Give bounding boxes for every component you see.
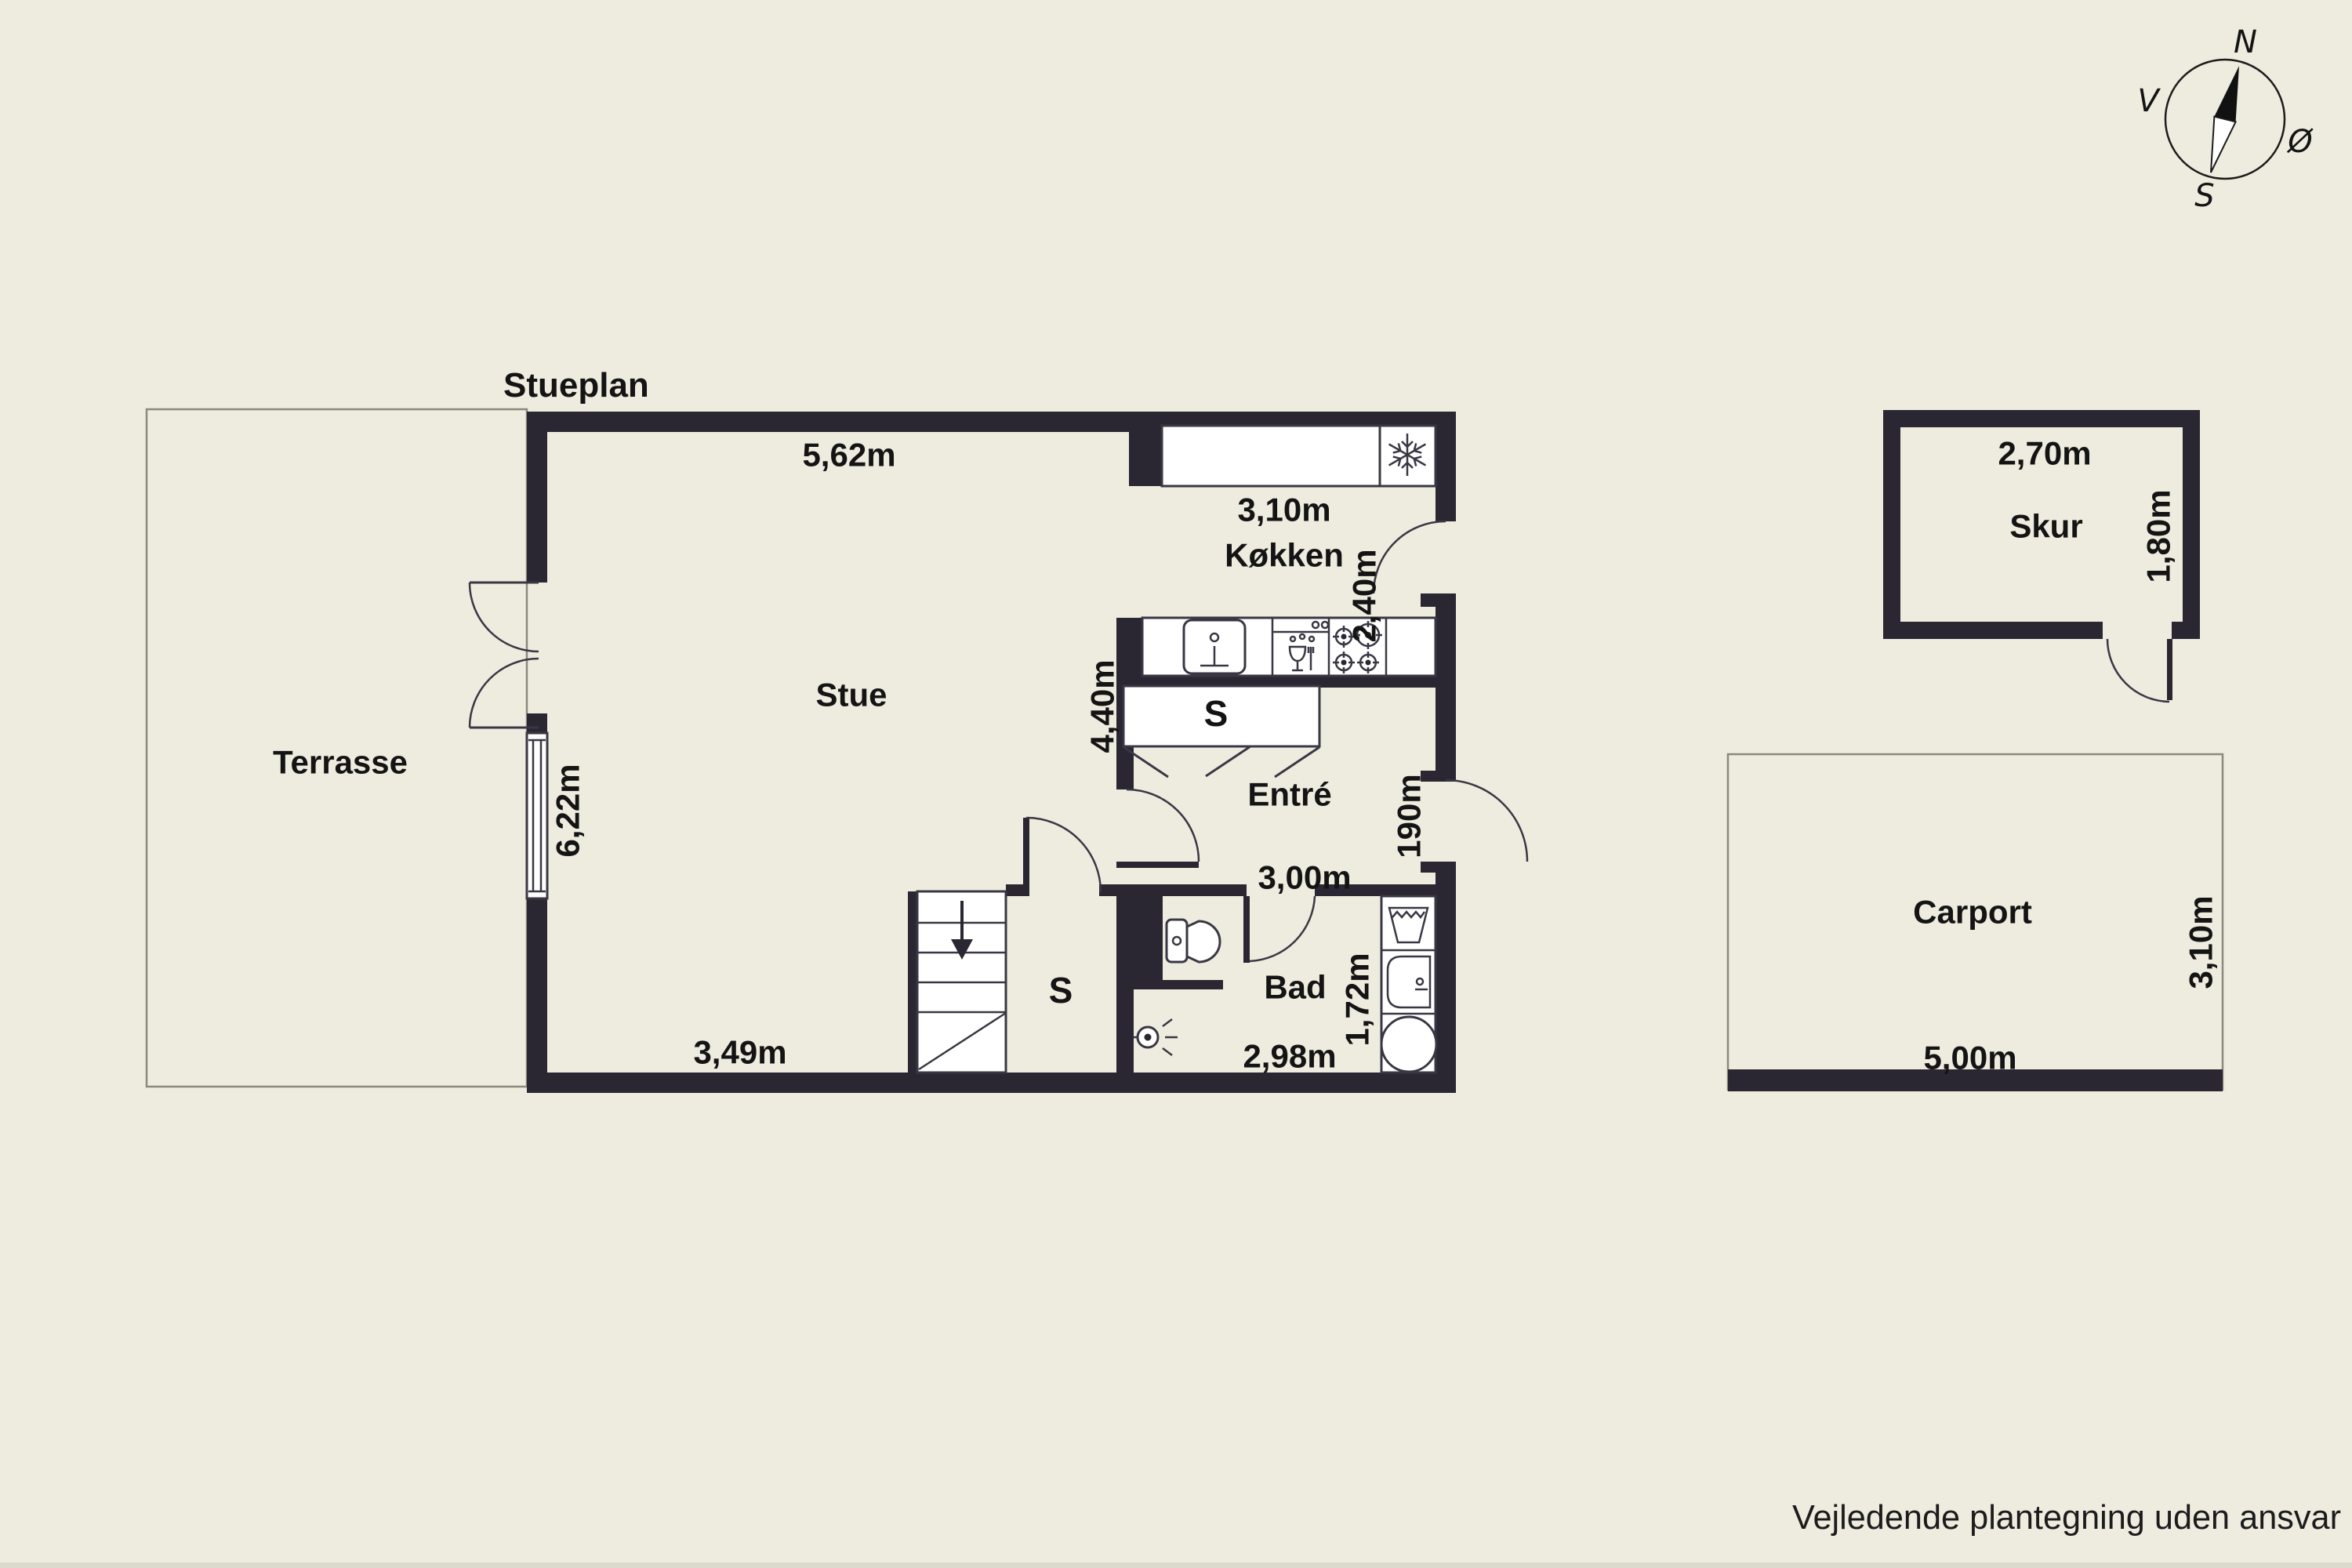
compass-label-north: N [2234, 24, 2257, 60]
compass-label-east: Ø [2286, 124, 2314, 160]
wall-bottom [527, 1073, 1456, 1093]
measure-skur-depth: 1,80m [2140, 489, 2177, 583]
label-bad: Bad [1264, 969, 1326, 1006]
measure-entre-door: 190m [1391, 774, 1428, 858]
closet-door-leaf [1023, 818, 1029, 896]
entre-door-leaf [1116, 862, 1199, 868]
label-koekken: Køkken [1225, 537, 1344, 574]
measure-bad-width: 2,98m [1243, 1038, 1336, 1075]
label-terrasse: Terrasse [273, 744, 408, 781]
measure-entre-width: 3,00m [1258, 859, 1351, 896]
label-carport: Carport [1913, 894, 2032, 931]
wall-right-middle [1436, 593, 1456, 782]
bad-door-arc [1250, 896, 1315, 961]
bad-left-wall [1116, 884, 1134, 1093]
compass-needle-north [2214, 66, 2239, 122]
compass-label-west: V [2137, 83, 2161, 119]
disclaimer-text: Vejledende plantegning uden ansvar [1792, 1498, 2341, 1537]
wall-right-upper [1436, 412, 1456, 521]
wall-left-lower [527, 898, 547, 1093]
toilet-bowl [1187, 921, 1220, 962]
compass-label-south: S [2194, 178, 2214, 214]
measure-koekken-depth: 2,40m [1346, 549, 1383, 642]
measure-carport-width: 5,00m [1923, 1040, 2016, 1076]
label-closet-stairs: S [1049, 970, 1073, 1011]
wall-left-stub [527, 713, 547, 733]
kitchen-pier [1129, 412, 1162, 486]
measure-carport-depth: 3,10m [2183, 895, 2220, 989]
skur-door-jamb [2172, 622, 2200, 639]
skur-wall-left [1883, 410, 1900, 639]
measure-stue-top: 5,62m [802, 437, 895, 474]
wall-lamp-icon [1134, 1019, 1178, 1055]
wall-left-upper [527, 412, 547, 583]
compass-rose: N V Ø S [2137, 24, 2314, 214]
skur-wall-top [1883, 410, 2200, 427]
skur-wall-bottom [1883, 622, 2103, 639]
label-skur: Skur [2009, 508, 2082, 545]
wall-right-lower [1436, 862, 1456, 1093]
window [527, 733, 547, 898]
bad-door-leaf [1243, 896, 1250, 963]
floor-plan-page: N V Ø S Stueplan Terrasse 5,62m 6,22m 3,… [0, 0, 2352, 1568]
skur-door-arc [2107, 639, 2169, 702]
toilet-niche-wall [1163, 980, 1223, 989]
measure-stue-bottom: 3,49m [693, 1034, 786, 1071]
skur-wall-right [2183, 410, 2200, 639]
front-door-jamb-bottom [1421, 862, 1456, 873]
measure-stue-left: 6,22m [550, 764, 586, 857]
kitchen-door-jamb [1421, 593, 1456, 607]
bottom-edge-line [0, 1563, 2352, 1568]
measure-entre-wall: 4,40m [1084, 659, 1121, 753]
stairs-side-wall [908, 891, 917, 1073]
measure-bad-depth: 1,72m [1339, 953, 1376, 1046]
closet-door-arc [1026, 818, 1101, 892]
measure-koekken-width: 3,10m [1237, 492, 1330, 528]
wardrobe-slide-marks [1123, 746, 1319, 777]
terrace-door-arc-top [470, 583, 539, 652]
front-door-arc [1446, 780, 1527, 862]
compass-needle-south [2211, 117, 2236, 172]
floor-plan-canvas: N V Ø S Stueplan Terrasse 5,62m 6,22m 3,… [0, 0, 2352, 1568]
stairs [917, 891, 1006, 1073]
plan-labels: Stueplan Terrasse 5,62m 6,22m 3,49m Stue… [273, 366, 2341, 1537]
entre-door-arc [1127, 789, 1199, 862]
kitchen-counter-top [1162, 426, 1380, 486]
skur-door-leaf [2167, 639, 2172, 700]
round-fixture [1381, 1017, 1436, 1072]
measure-skur-width: 2,70m [1998, 435, 2091, 472]
toilet-tank [1167, 920, 1187, 962]
bad-top-wall-left [1163, 884, 1247, 896]
label-stue: Stue [815, 677, 887, 713]
kitchen-door-arc [1374, 521, 1446, 593]
page-title: Stueplan [503, 366, 649, 405]
shaft-block [1134, 884, 1163, 989]
label-entre: Entré [1247, 776, 1331, 813]
label-closet-entre: S [1204, 693, 1229, 734]
